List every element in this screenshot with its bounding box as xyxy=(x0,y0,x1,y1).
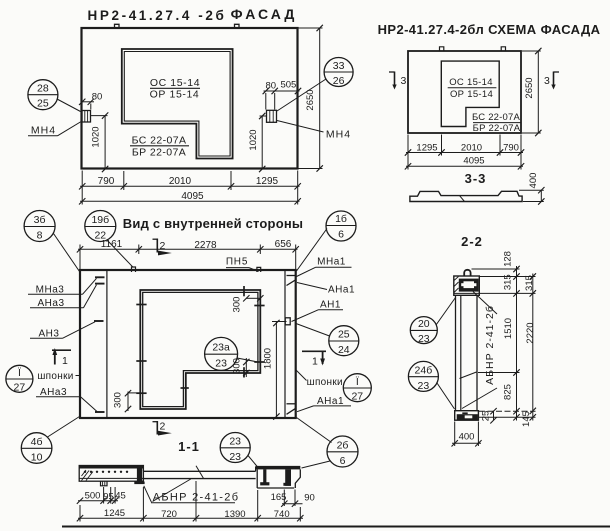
svg-text:шпонки: шпонки xyxy=(37,371,73,382)
svg-text:ФАСАД: ФАСАД xyxy=(231,6,298,22)
svg-text:740: 740 xyxy=(274,509,290,520)
svg-text:4095: 4095 xyxy=(463,156,484,167)
svg-text:825: 825 xyxy=(503,384,514,400)
svg-text:1390: 1390 xyxy=(224,509,245,520)
svg-text:45: 45 xyxy=(115,491,126,502)
svg-text:2220: 2220 xyxy=(525,322,536,343)
svg-text:24: 24 xyxy=(338,344,350,356)
svg-text:656: 656 xyxy=(275,239,292,250)
svg-text:2: 2 xyxy=(160,421,166,433)
svg-text:25: 25 xyxy=(37,98,49,110)
svg-text:3: 3 xyxy=(544,75,550,87)
svg-text:80: 80 xyxy=(92,92,103,103)
svg-text:2б: 2б xyxy=(337,440,349,452)
svg-text:145: 145 xyxy=(521,411,532,427)
svg-text:3: 3 xyxy=(401,75,407,87)
svg-text:19б: 19б xyxy=(91,214,109,226)
svg-text:315: 315 xyxy=(502,274,513,290)
svg-text:300: 300 xyxy=(112,392,123,408)
svg-text:27: 27 xyxy=(14,382,26,394)
svg-text:1б: 1б xyxy=(335,213,347,225)
svg-text:АНа1: АНа1 xyxy=(328,285,355,296)
svg-text:6: 6 xyxy=(338,229,344,241)
svg-text:ПН5: ПН5 xyxy=(226,257,248,268)
svg-text:1510: 1510 xyxy=(503,318,514,339)
svg-text:505: 505 xyxy=(280,80,296,91)
svg-text:33: 33 xyxy=(333,60,345,72)
svg-text:БС 22-07А: БС 22-07А xyxy=(132,135,187,147)
svg-text:790: 790 xyxy=(98,176,115,187)
svg-text:ОС 15-14: ОС 15-14 xyxy=(449,77,493,88)
svg-text:2010: 2010 xyxy=(169,176,192,187)
svg-text:25: 25 xyxy=(480,411,491,422)
svg-text:АНа1: АНа1 xyxy=(317,396,344,407)
svg-text:2650: 2650 xyxy=(524,77,535,98)
svg-text:ОС 15-14: ОС 15-14 xyxy=(150,77,200,89)
svg-text:128: 128 xyxy=(502,251,513,267)
svg-text:4095: 4095 xyxy=(181,191,204,202)
svg-text:300: 300 xyxy=(232,297,243,313)
svg-text:шпонки: шпонки xyxy=(307,377,343,388)
svg-text:1: 1 xyxy=(312,356,318,368)
svg-text:26: 26 xyxy=(333,75,345,87)
svg-text:8: 8 xyxy=(37,230,43,242)
svg-text:95: 95 xyxy=(103,492,114,503)
svg-text:23а: 23а xyxy=(212,342,230,354)
svg-text:НР2-41.27.4 -2б: НР2-41.27.4 -2б xyxy=(88,8,227,23)
svg-text:23: 23 xyxy=(215,358,227,370)
svg-text:20: 20 xyxy=(418,318,430,330)
svg-text:БР 22-07А: БР 22-07А xyxy=(473,123,521,134)
svg-text:АН1: АН1 xyxy=(320,300,341,311)
svg-text:МНа1: МНа1 xyxy=(317,257,346,268)
svg-text:МН4: МН4 xyxy=(326,129,351,141)
svg-text:1020: 1020 xyxy=(248,129,259,150)
svg-text:3-3: 3-3 xyxy=(465,171,487,186)
svg-text:Ï: Ï xyxy=(18,367,21,379)
svg-text:27: 27 xyxy=(351,391,363,403)
svg-text:400: 400 xyxy=(528,173,539,189)
svg-text:2-2: 2-2 xyxy=(461,234,483,249)
svg-text:23: 23 xyxy=(418,380,430,392)
svg-text:1295: 1295 xyxy=(416,143,437,154)
svg-text:6: 6 xyxy=(340,455,346,467)
svg-text:ОР 15-14: ОР 15-14 xyxy=(150,89,200,101)
svg-text:24б: 24б xyxy=(415,365,433,377)
svg-text:2010: 2010 xyxy=(461,143,482,154)
svg-text:23: 23 xyxy=(418,333,430,345)
svg-text:Вид с внутренней стороны: Вид с внутренней стороны xyxy=(123,216,303,231)
svg-text:500: 500 xyxy=(85,491,101,502)
svg-text:БР 22-07А: БР 22-07А xyxy=(132,146,186,158)
svg-text:ОР 15-14: ОР 15-14 xyxy=(450,89,493,100)
svg-text:4б: 4б xyxy=(31,436,43,448)
svg-text:28: 28 xyxy=(37,83,49,95)
svg-text:400: 400 xyxy=(459,432,475,443)
svg-text:1: 1 xyxy=(62,355,68,367)
svg-text:1-1: 1-1 xyxy=(178,439,200,454)
svg-text:1020: 1020 xyxy=(91,126,102,147)
svg-text:1800: 1800 xyxy=(262,348,273,369)
svg-text:90: 90 xyxy=(304,493,315,504)
svg-text:23: 23 xyxy=(229,436,241,448)
svg-text:720: 720 xyxy=(161,509,177,520)
svg-text:2650: 2650 xyxy=(305,89,316,110)
svg-text:23: 23 xyxy=(229,451,241,463)
svg-text:НР2-41.27.4-2бл СХЕМА ФАСАДА: НР2-41.27.4-2бл СХЕМА ФАСАДА xyxy=(378,22,601,37)
svg-text:2: 2 xyxy=(160,240,166,252)
svg-text:Ï: Ï xyxy=(356,376,359,388)
svg-text:3б: 3б xyxy=(34,214,46,226)
svg-text:315: 315 xyxy=(524,275,535,291)
svg-text:БС 22-07А: БС 22-07А xyxy=(472,112,521,123)
svg-text:790: 790 xyxy=(503,143,519,154)
svg-text:10: 10 xyxy=(31,452,43,464)
svg-text:МН4: МН4 xyxy=(31,125,56,137)
svg-text:1295: 1295 xyxy=(256,176,279,187)
svg-text:2278: 2278 xyxy=(194,240,217,251)
svg-text:25: 25 xyxy=(338,329,350,341)
svg-text:1245: 1245 xyxy=(104,508,125,519)
svg-text:22: 22 xyxy=(94,230,106,242)
